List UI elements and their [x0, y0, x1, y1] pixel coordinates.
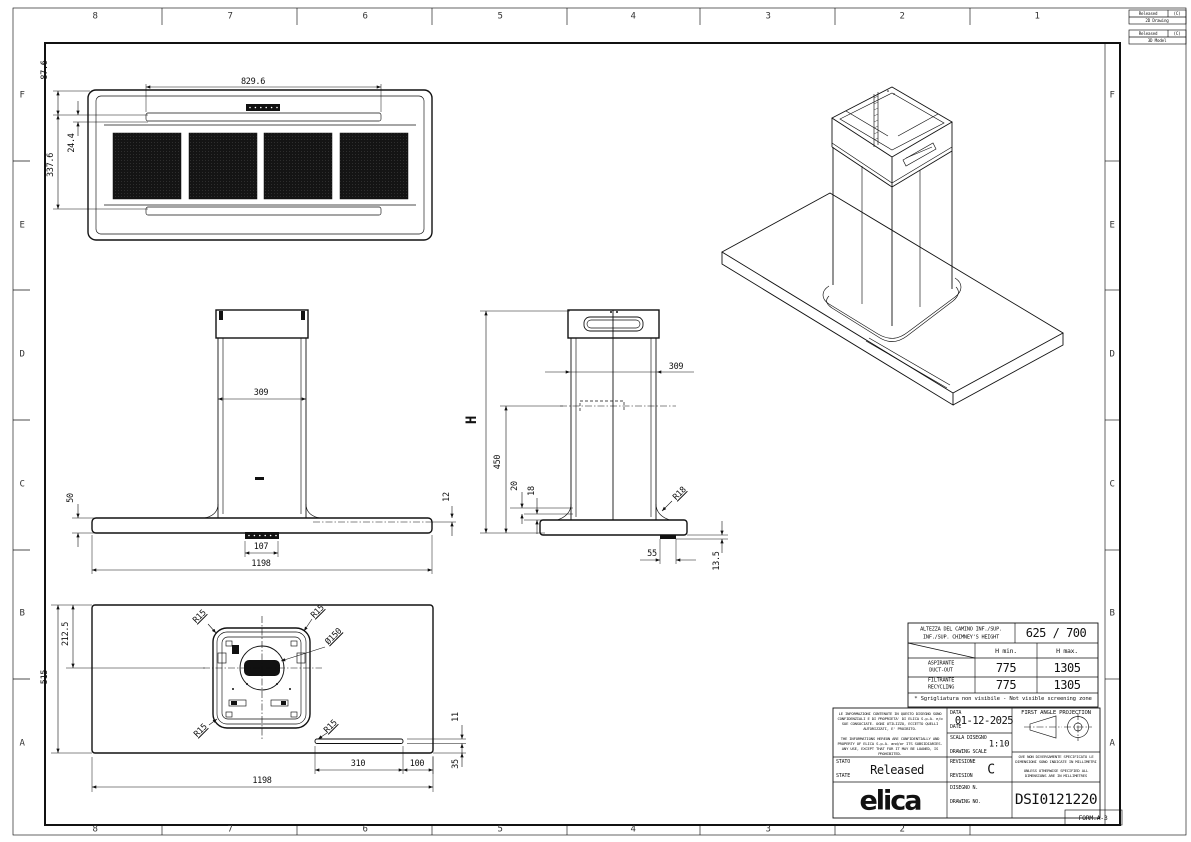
confidentiality-note-it: LE INFORMAZIONI CONTENUTE IN QUESTO DISE… — [835, 711, 945, 731]
table-row1-label-it: ASPIRANTE — [928, 661, 954, 666]
zone-left: F — [19, 92, 24, 101]
dim-1198-top: 1198 — [252, 777, 271, 786]
date-value: 01-12-2025 — [955, 716, 1013, 727]
flag-2d-rev: (C) — [1174, 12, 1181, 16]
zone-top: 7 — [227, 13, 232, 22]
dim-450: 450 — [494, 455, 503, 469]
table-row1-label-en: DUCT-OUT — [929, 668, 952, 673]
zone-bottom: 8 — [92, 826, 97, 835]
zone-left: A — [19, 740, 24, 749]
zone-right: C — [1109, 481, 1114, 490]
dim-337-6: 337.6 — [47, 153, 56, 177]
view-top — [51, 605, 466, 792]
sheet-frame — [13, 8, 1186, 835]
view-isometric — [722, 87, 1063, 405]
projection-symbol-icon — [1024, 713, 1092, 741]
zone-top: 2 — [899, 13, 904, 22]
table-title-it: ALTEZZA DEL CAMINO INF./SUP. — [920, 627, 1002, 632]
zone-right: D — [1109, 351, 1114, 360]
form-label: FORM.A-3 — [1079, 815, 1108, 822]
dim-13-5: 13.5 — [713, 551, 722, 570]
dim-309-front: 309 — [254, 389, 268, 398]
table-footnote: * Sgrigliatura non visibile - Not visibl… — [914, 697, 1091, 703]
dim-515: 515 — [41, 670, 50, 684]
flag-3d-kind: 3D Model — [1148, 39, 1167, 43]
table-col-hmax: H max. — [1056, 648, 1078, 655]
elica-logo: elica — [859, 788, 920, 815]
dim-50: 50 — [67, 493, 76, 503]
dim-1198-front: 1198 — [251, 560, 270, 569]
control-strip-front — [245, 532, 279, 539]
scale-label-it: SCALA DISEGNO — [950, 735, 987, 741]
table-row2-label-en: RECYCLING — [928, 685, 954, 690]
dim-11: 11 — [452, 712, 461, 722]
zone-top: 5 — [497, 13, 502, 22]
view-front — [72, 310, 456, 574]
zone-bottom: 3 — [765, 826, 770, 835]
table-row2-max: 1305 — [1054, 679, 1081, 691]
confidentiality-note-en: THE INFORMATIONS HEREON ARE CONFIDENTIAL… — [835, 736, 945, 756]
units-note-en: UNLESS OTHERWISE SPECIFIED ALL DIMENSION… — [1013, 769, 1099, 779]
revision-label-en: REVISION — [950, 773, 972, 779]
dim-55: 55 — [647, 550, 657, 559]
dim-829-6: 829.6 — [241, 78, 265, 87]
dim-310: 310 — [351, 760, 365, 769]
units-note-it: OVE NON DIVERSAMENTE SPECIFICATO LE DIME… — [1013, 755, 1099, 765]
table-row2-min: 775 — [996, 679, 1016, 691]
zone-bottom: 5 — [497, 826, 502, 835]
dim-12: 12 — [443, 492, 452, 502]
view-bottom — [53, 84, 432, 240]
zone-bottom: 6 — [362, 826, 367, 835]
zone-left: C — [19, 481, 24, 490]
flag-3d-status: Released — [1139, 32, 1158, 36]
dim-107: 107 — [254, 543, 268, 552]
drawing-no-label-it: DISEGNO N. — [950, 785, 978, 791]
dim-24-4: 24.4 — [68, 133, 77, 152]
rear-slot — [315, 739, 403, 744]
zone-bottom: 4 — [630, 826, 635, 835]
zone-right: A — [1109, 740, 1114, 749]
zone-top: 6 — [362, 13, 367, 22]
zone-top: 3 — [765, 13, 770, 22]
revision-value: C — [987, 764, 995, 777]
view-side — [480, 310, 728, 564]
drawing-no-label-en: DRAWING NO. — [950, 799, 981, 805]
table-row1-max: 1305 — [1054, 662, 1081, 674]
table-title-value: 625 / 700 — [1026, 627, 1087, 639]
drawing-sheet: 8 7 6 5 4 3 2 1 8 7 6 5 4 3 2 F E D C B … — [0, 0, 1191, 842]
zone-top: 1 — [1034, 13, 1039, 22]
zone-bottom: 7 — [227, 826, 232, 835]
zone-bottom: 2 — [899, 826, 904, 835]
scale-label-en: DRAWING SCALE — [950, 749, 987, 755]
zone-top: 8 — [92, 13, 97, 22]
projection-label: FIRST ANGLE PROJECTION — [1021, 711, 1091, 717]
dim-20: 20 — [511, 481, 520, 491]
zone-top: 4 — [630, 13, 635, 22]
control-strip — [246, 104, 280, 111]
table-row2-label-it: FILTRANTE — [928, 678, 954, 683]
zone-left: D — [19, 351, 24, 360]
state-value: Released — [870, 764, 924, 776]
table-title-en: INF./SUP. CHIMNEY'S HEIGHT — [923, 635, 999, 640]
state-label-it: STATO — [836, 759, 850, 765]
state-label-en: STATE — [836, 773, 850, 779]
zone-right: F — [1109, 92, 1114, 101]
zone-left: B — [19, 610, 24, 619]
zone-right: E — [1109, 222, 1114, 231]
brand-mark — [255, 477, 264, 480]
drawing-number: DSI0121220 — [1015, 793, 1097, 808]
dim-212-5: 212.5 — [62, 622, 71, 646]
table-row1-min: 775 — [996, 662, 1016, 674]
flag-3d-rev: (C) — [1174, 32, 1181, 36]
flag-2d-status: Released — [1139, 12, 1158, 16]
flag-2d-kind: 2D Drawing — [1145, 19, 1168, 23]
zone-right: B — [1109, 610, 1114, 619]
dim-H: H — [465, 416, 479, 424]
dim-35: 35 — [452, 759, 461, 769]
dim-87-6: 87.6 — [41, 60, 50, 79]
revision-label-it: REVISIONE — [950, 759, 975, 765]
scale-value: 1:10 — [989, 741, 1009, 750]
zone-left: E — [19, 222, 24, 231]
dim-100: 100 — [410, 760, 424, 769]
dim-18: 18 — [528, 486, 537, 496]
table-col-hmin: H min. — [995, 648, 1017, 655]
dim-309-side: 309 — [669, 363, 683, 372]
